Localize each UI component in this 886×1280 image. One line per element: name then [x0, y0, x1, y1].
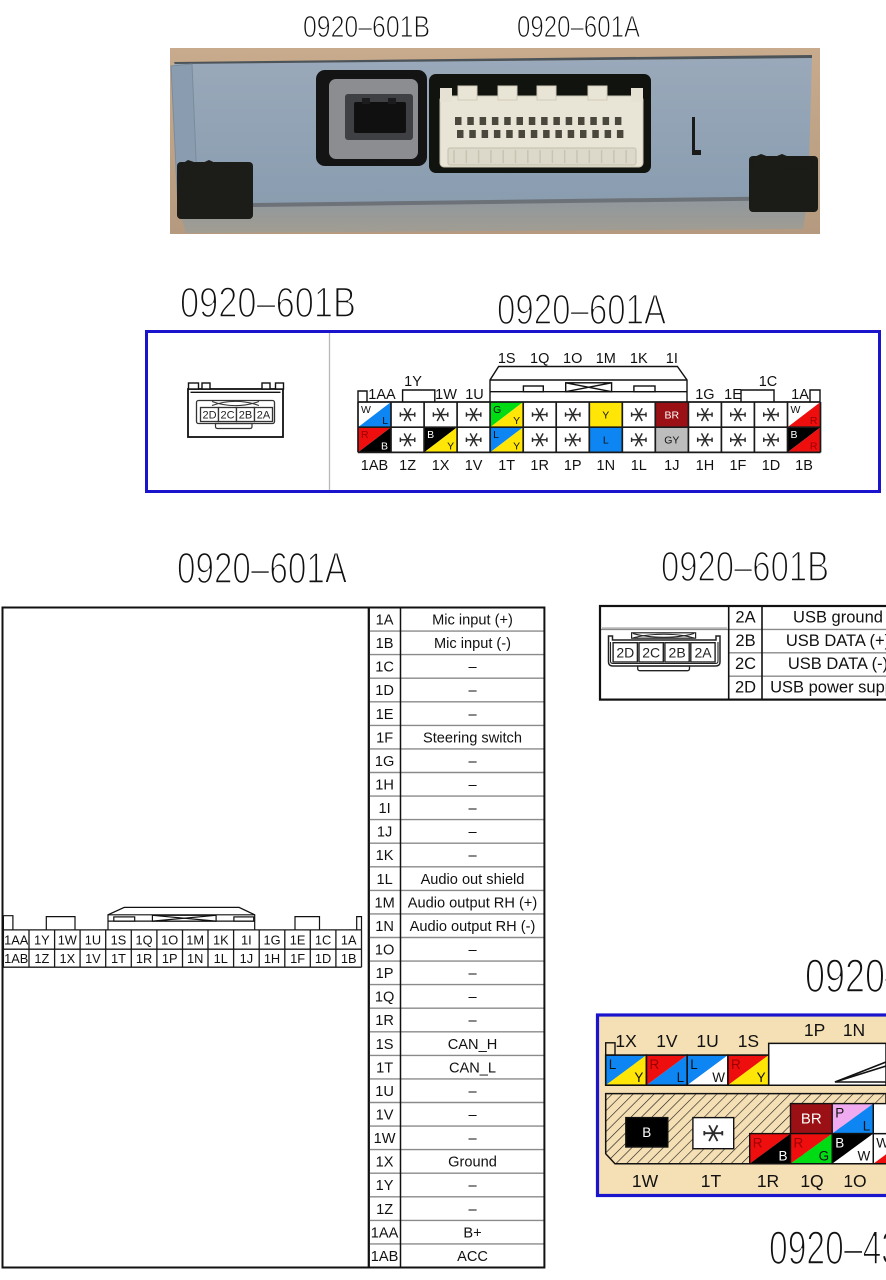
- svg-text:–: –: [468, 1131, 477, 1147]
- svg-text:W: W: [361, 404, 371, 416]
- svg-text:1F: 1F: [729, 458, 746, 474]
- svg-text:1X: 1X: [432, 458, 450, 474]
- svg-text:1O: 1O: [161, 932, 178, 947]
- svg-text:1U: 1U: [375, 1084, 394, 1100]
- svg-text:R: R: [810, 440, 818, 452]
- svg-text:1R: 1R: [136, 951, 152, 966]
- svg-text:1D: 1D: [762, 458, 781, 474]
- svg-text:0920–601B: 0920–601B: [303, 9, 430, 44]
- svg-text:–: –: [468, 1084, 477, 1100]
- svg-text:GY: GY: [664, 435, 679, 447]
- svg-text:Ground: Ground: [448, 1155, 497, 1171]
- svg-text:2A: 2A: [694, 645, 712, 661]
- svg-text:0920–601B: 0920–601B: [661, 543, 829, 591]
- svg-text:ACC: ACC: [457, 1249, 488, 1265]
- svg-text:1V: 1V: [376, 1108, 394, 1124]
- svg-text:0920–60: 0920–60: [805, 949, 886, 1002]
- svg-text:1I: 1I: [241, 932, 252, 947]
- svg-text:1H: 1H: [375, 778, 394, 794]
- svg-text:1S: 1S: [376, 1037, 394, 1053]
- svg-text:–: –: [468, 1202, 477, 1218]
- svg-text:1V: 1V: [465, 458, 483, 474]
- svg-text:1M: 1M: [186, 932, 204, 947]
- svg-text:1D: 1D: [375, 683, 394, 699]
- svg-text:1V: 1V: [85, 951, 101, 966]
- svg-text:1F: 1F: [290, 951, 305, 966]
- svg-text:1H: 1H: [696, 458, 715, 474]
- svg-text:W: W: [858, 1149, 871, 1164]
- svg-text:2A: 2A: [735, 608, 755, 626]
- svg-text:Y: Y: [513, 415, 520, 427]
- svg-text:USB DATA (+): USB DATA (+): [786, 632, 886, 650]
- svg-text:1AB: 1AB: [371, 1249, 399, 1265]
- svg-text:R: R: [810, 415, 818, 427]
- svg-text:1P: 1P: [804, 1020, 825, 1040]
- svg-text:B: B: [427, 429, 434, 441]
- svg-text:1Y: 1Y: [34, 932, 50, 947]
- svg-text:2B: 2B: [735, 632, 755, 650]
- svg-text:1J: 1J: [240, 951, 254, 966]
- svg-text:BR: BR: [801, 1111, 822, 1128]
- svg-text:1G: 1G: [695, 387, 714, 403]
- svg-text:L: L: [690, 1057, 698, 1072]
- svg-text:1M: 1M: [596, 351, 616, 367]
- svg-text:–: –: [468, 1108, 477, 1124]
- svg-text:1I: 1I: [379, 801, 391, 817]
- svg-text:1R: 1R: [375, 1013, 394, 1029]
- svg-text:1V: 1V: [656, 1031, 678, 1051]
- svg-text:USB DATA (-): USB DATA (-): [788, 655, 886, 673]
- svg-text:1E: 1E: [376, 707, 394, 723]
- svg-text:1M: 1M: [374, 895, 394, 911]
- svg-text:1X: 1X: [376, 1155, 394, 1171]
- svg-text:–: –: [468, 707, 477, 723]
- svg-text:2B: 2B: [669, 645, 686, 661]
- svg-text:1Q: 1Q: [375, 990, 394, 1006]
- svg-text:1J: 1J: [377, 825, 392, 841]
- svg-text:1Y: 1Y: [404, 374, 422, 390]
- svg-text:Y: Y: [447, 440, 454, 452]
- svg-text:1U: 1U: [465, 387, 484, 403]
- svg-text:–: –: [468, 1178, 477, 1194]
- svg-text:1C: 1C: [375, 660, 394, 676]
- svg-text:1W: 1W: [435, 387, 457, 403]
- svg-text:Y: Y: [634, 1070, 643, 1085]
- svg-text:1J: 1J: [664, 458, 679, 474]
- svg-text:Y: Y: [513, 440, 520, 452]
- svg-text:L: L: [382, 415, 388, 427]
- svg-text:L: L: [677, 1070, 685, 1085]
- svg-text:P: P: [835, 1106, 844, 1121]
- svg-text:1AB: 1AB: [4, 951, 28, 966]
- svg-text:1X: 1X: [615, 1031, 637, 1051]
- svg-text:CAN_L: CAN_L: [449, 1060, 496, 1076]
- svg-text:USB ground: USB ground: [793, 608, 883, 626]
- svg-text:1AB: 1AB: [361, 458, 388, 474]
- svg-text:Mic input (+): Mic input (+): [432, 613, 513, 629]
- svg-text:L: L: [609, 1057, 617, 1072]
- svg-text:1Q: 1Q: [136, 932, 153, 947]
- svg-text:1R: 1R: [530, 458, 549, 474]
- svg-text:2C: 2C: [735, 655, 756, 673]
- svg-text:–: –: [468, 990, 477, 1006]
- svg-text:1T: 1T: [498, 458, 515, 474]
- svg-text:B: B: [778, 1149, 787, 1164]
- svg-text:W: W: [876, 1136, 886, 1151]
- svg-text:1X: 1X: [59, 951, 75, 966]
- svg-text:R: R: [361, 429, 369, 441]
- svg-text:B: B: [835, 1136, 844, 1151]
- svg-text:2A: 2A: [257, 409, 271, 421]
- svg-text:R: R: [731, 1057, 741, 1072]
- svg-text:W: W: [790, 404, 800, 416]
- svg-text:1T: 1T: [701, 1171, 722, 1191]
- svg-text:1T: 1T: [111, 951, 126, 966]
- svg-text:1AA: 1AA: [4, 932, 29, 947]
- svg-text:1O: 1O: [563, 351, 582, 367]
- svg-text:G: G: [493, 404, 501, 416]
- svg-text:–: –: [468, 683, 477, 699]
- svg-text:–: –: [468, 848, 477, 864]
- svg-text:R: R: [794, 1136, 804, 1151]
- svg-text:1N: 1N: [843, 1020, 865, 1040]
- svg-text:1O: 1O: [843, 1171, 866, 1191]
- svg-text:1F: 1F: [376, 730, 393, 746]
- svg-text:–: –: [468, 825, 477, 841]
- svg-text:1B: 1B: [376, 636, 394, 652]
- svg-text:1N: 1N: [597, 458, 616, 474]
- svg-text:USB power supply: USB power supply: [770, 679, 886, 697]
- svg-text:Y: Y: [602, 409, 609, 421]
- svg-text:BR: BR: [665, 409, 680, 421]
- svg-text:1D: 1D: [315, 951, 331, 966]
- svg-text:1S: 1S: [111, 932, 127, 947]
- svg-text:1R: 1R: [757, 1171, 779, 1191]
- svg-text:1Y: 1Y: [376, 1178, 394, 1194]
- svg-text:1P: 1P: [162, 951, 178, 966]
- svg-text:1A: 1A: [341, 932, 357, 947]
- svg-text:B: B: [642, 1125, 651, 1140]
- svg-text:L: L: [603, 435, 609, 447]
- svg-text:0920–43: 0920–43: [769, 1221, 886, 1274]
- svg-text:1AA: 1AA: [368, 387, 396, 403]
- svg-text:1B: 1B: [341, 951, 357, 966]
- svg-text:1K: 1K: [213, 932, 229, 947]
- svg-text:2B: 2B: [239, 409, 252, 421]
- svg-text:1E: 1E: [290, 932, 306, 947]
- svg-text:1K: 1K: [630, 351, 648, 367]
- svg-text:Mic input (-): Mic input (-): [434, 636, 511, 652]
- svg-text:1B: 1B: [795, 458, 813, 474]
- svg-text:1I: 1I: [666, 351, 678, 367]
- svg-text:1U: 1U: [85, 932, 101, 947]
- svg-text:Audio output RH (-): Audio output RH (-): [410, 919, 536, 935]
- svg-text:1L: 1L: [631, 458, 647, 474]
- svg-text:1Z: 1Z: [376, 1202, 393, 1218]
- svg-text:2D: 2D: [616, 645, 634, 661]
- svg-text:1H: 1H: [264, 951, 280, 966]
- svg-text:1U: 1U: [696, 1031, 718, 1051]
- svg-text:R: R: [753, 1136, 763, 1151]
- svg-text:–: –: [468, 966, 477, 982]
- svg-text:L: L: [493, 429, 499, 441]
- svg-text:Y: Y: [757, 1070, 766, 1085]
- svg-text:1A: 1A: [791, 387, 809, 403]
- svg-text:Audio out shield: Audio out shield: [421, 872, 525, 888]
- svg-text:L: L: [863, 1119, 871, 1134]
- svg-text:Audio output RH (+): Audio output RH (+): [408, 895, 537, 911]
- svg-text:B: B: [381, 440, 388, 452]
- svg-text:–: –: [468, 660, 477, 676]
- svg-text:2C: 2C: [642, 645, 660, 661]
- svg-text:1Q: 1Q: [530, 351, 549, 367]
- svg-text:–: –: [468, 943, 477, 959]
- svg-text:1P: 1P: [376, 966, 394, 982]
- svg-text:2D: 2D: [202, 409, 216, 421]
- svg-text:0920–601A: 0920–601A: [497, 286, 666, 334]
- svg-text:1W: 1W: [632, 1171, 659, 1191]
- svg-text:1S: 1S: [738, 1031, 759, 1051]
- svg-text:1Q: 1Q: [800, 1171, 823, 1191]
- svg-text:0920–601A: 0920–601A: [517, 9, 640, 44]
- svg-text:1T: 1T: [376, 1060, 393, 1076]
- svg-text:1E: 1E: [724, 387, 742, 403]
- svg-text:2C: 2C: [220, 409, 234, 421]
- svg-text:1W: 1W: [374, 1131, 396, 1147]
- svg-text:1N: 1N: [375, 919, 394, 935]
- svg-text:Steering switch: Steering switch: [423, 730, 522, 746]
- svg-text:0920–601A: 0920–601A: [177, 544, 347, 593]
- svg-text:1L: 1L: [376, 872, 392, 888]
- svg-text:1G: 1G: [263, 932, 280, 947]
- svg-text:1Z: 1Z: [34, 951, 49, 966]
- svg-text:2D: 2D: [735, 679, 756, 697]
- svg-text:G: G: [819, 1149, 830, 1164]
- svg-text:1S: 1S: [498, 351, 516, 367]
- svg-text:B+: B+: [463, 1225, 481, 1241]
- svg-text:1AA: 1AA: [371, 1225, 399, 1241]
- svg-text:1P: 1P: [564, 458, 582, 474]
- svg-text:1A: 1A: [376, 613, 394, 629]
- svg-text:–: –: [468, 778, 477, 794]
- svg-text:1Z: 1Z: [399, 458, 416, 474]
- svg-text:1L: 1L: [214, 951, 228, 966]
- svg-text:R: R: [649, 1057, 659, 1072]
- svg-text:1G: 1G: [375, 754, 394, 770]
- svg-text:1O: 1O: [375, 943, 394, 959]
- svg-text:–: –: [468, 1013, 477, 1029]
- svg-text:–: –: [468, 801, 477, 817]
- svg-text:W: W: [712, 1070, 725, 1085]
- svg-text:–: –: [468, 754, 477, 770]
- svg-text:1W: 1W: [58, 932, 78, 947]
- svg-text:CAN_H: CAN_H: [448, 1037, 497, 1053]
- svg-text:1C: 1C: [315, 932, 331, 947]
- svg-text:B: B: [790, 429, 797, 441]
- svg-text:0920–601B: 0920–601B: [180, 279, 356, 327]
- svg-text:1K: 1K: [376, 848, 394, 864]
- svg-text:1C: 1C: [759, 374, 778, 390]
- svg-text:1N: 1N: [187, 951, 203, 966]
